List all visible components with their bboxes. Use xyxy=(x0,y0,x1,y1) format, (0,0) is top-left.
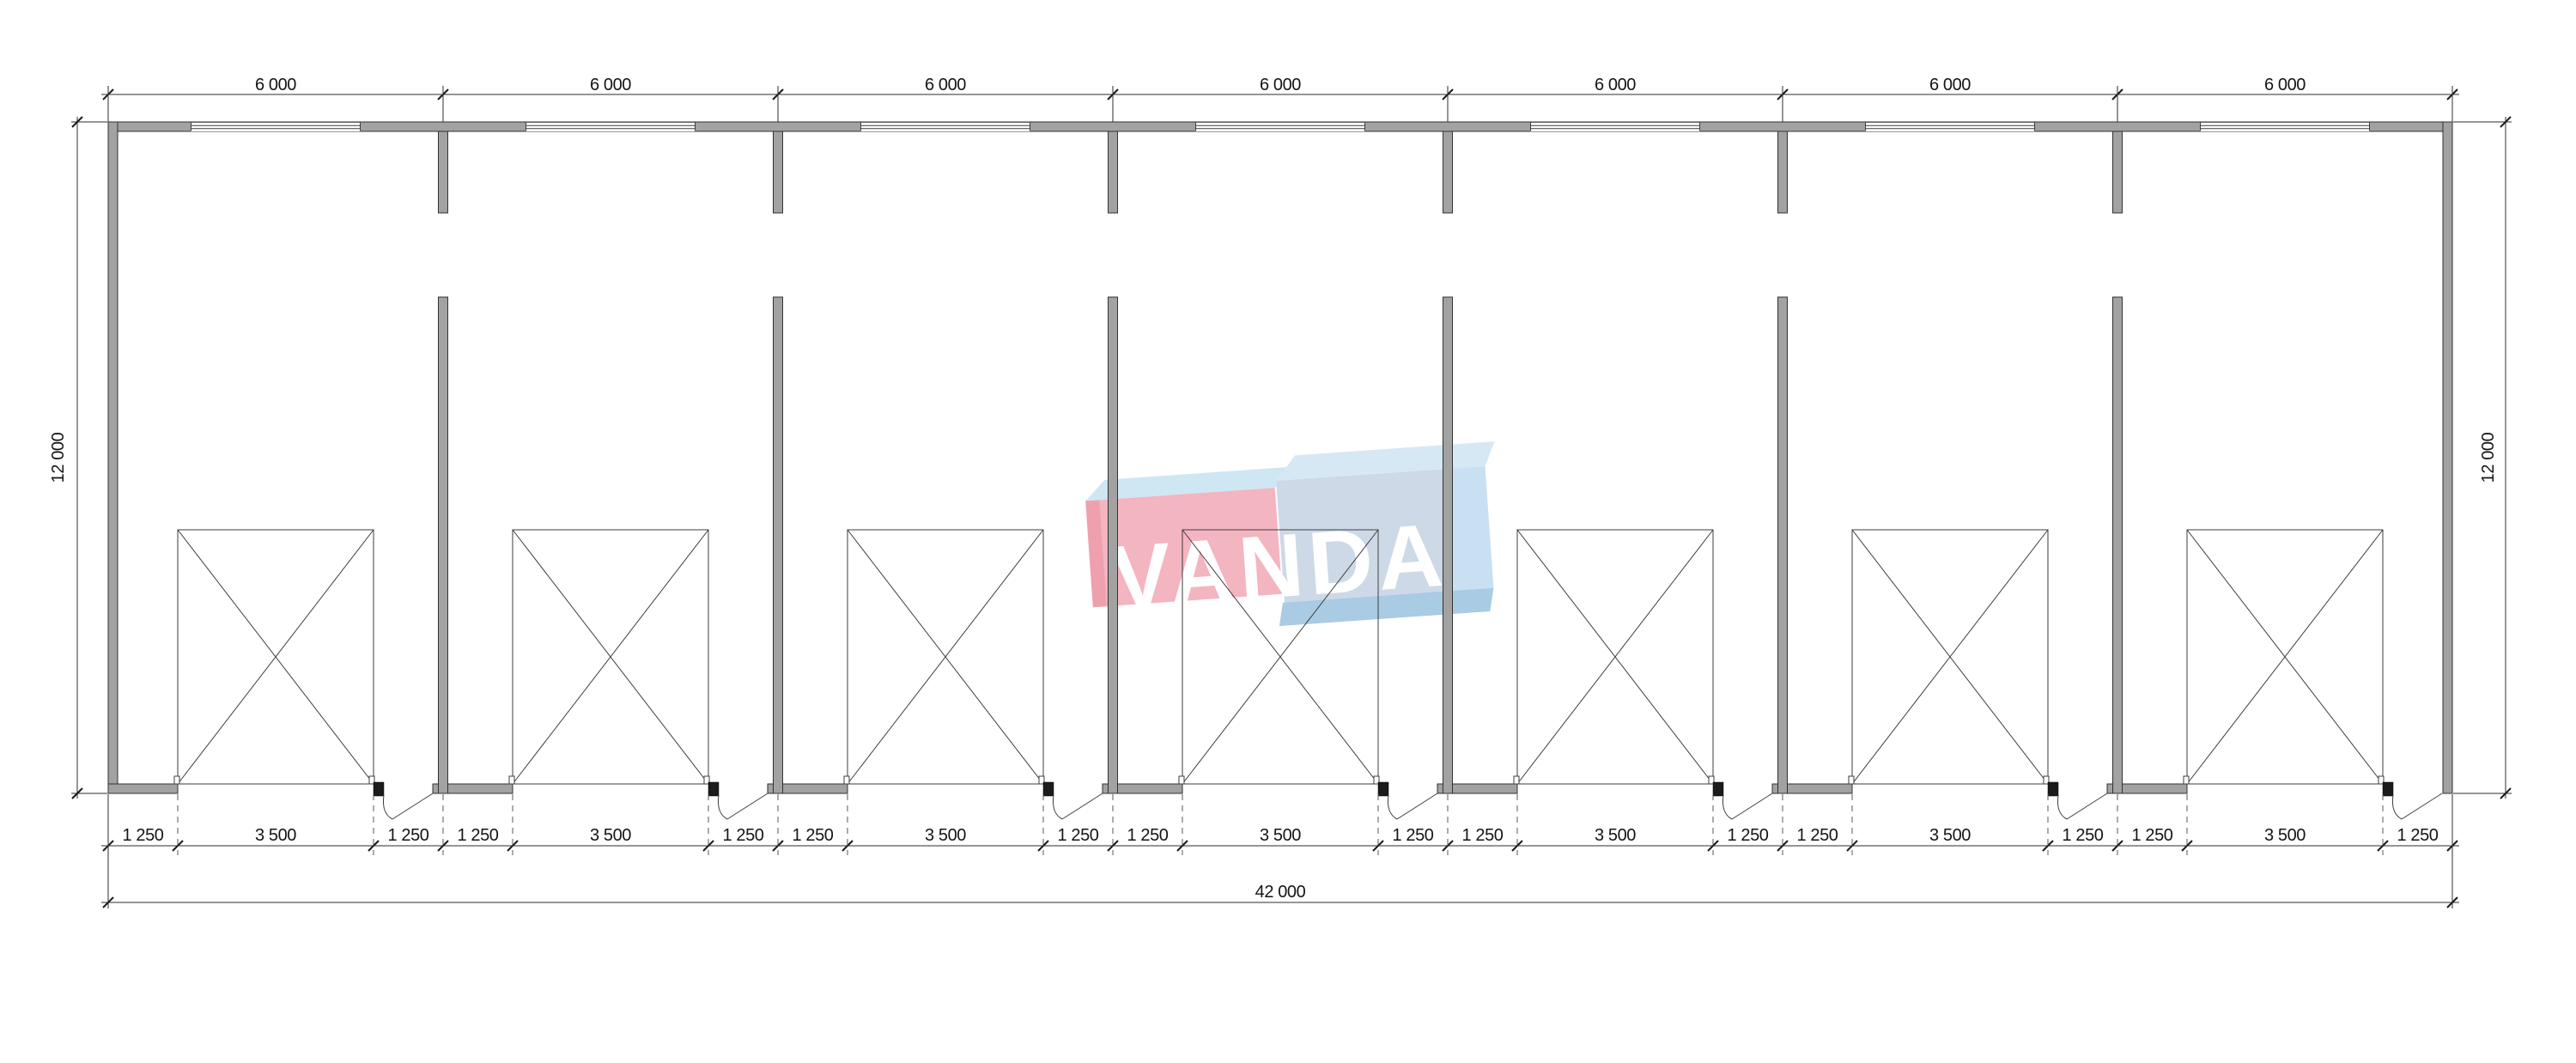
window-opening xyxy=(526,123,696,131)
dimension-label: 6 000 xyxy=(925,76,966,94)
dimension-label: 6 000 xyxy=(590,76,631,94)
garage-jamb-marker xyxy=(174,776,179,784)
partition-wall xyxy=(774,297,783,793)
dimension-label: 1 250 xyxy=(2131,826,2172,845)
partition-wall xyxy=(1443,297,1453,793)
partition-wall xyxy=(2113,297,2123,793)
dimension-label: 3 500 xyxy=(1260,826,1301,845)
dimension-label: 1 250 xyxy=(2062,826,2103,845)
garage-jamb-marker xyxy=(2184,776,2189,784)
dimension-label: 6 000 xyxy=(1260,76,1301,94)
dimension-label: 6 000 xyxy=(1595,76,1636,94)
window-opening xyxy=(191,123,361,131)
dimension-label: 1 250 xyxy=(1796,826,1838,845)
door-leaf xyxy=(727,793,768,819)
door-jamb xyxy=(1713,782,1723,796)
window-opening xyxy=(1195,123,1365,131)
door-swing-arc xyxy=(1722,795,1732,819)
door-jamb xyxy=(2048,782,2058,796)
door-jamb xyxy=(1043,782,1054,796)
left-height-dimension-label: 12 000 xyxy=(49,432,68,483)
door-jamb xyxy=(374,782,384,796)
door-jamb xyxy=(1378,782,1388,796)
dimension-label: 6 000 xyxy=(2264,76,2306,94)
right-height-dimension-label: 12 000 xyxy=(2479,432,2498,483)
door-swing-arc xyxy=(2057,795,2067,819)
dimension-label: 1 250 xyxy=(1392,826,1433,845)
partition-wall xyxy=(1109,297,1118,793)
dimension-label: 1 250 xyxy=(792,826,833,845)
partition-wall-stub xyxy=(1109,131,1118,213)
window-opening xyxy=(1865,123,2035,131)
dimension-label: 1 250 xyxy=(1727,826,1768,845)
partition-wall xyxy=(1778,297,1788,793)
door-leaf xyxy=(2067,793,2107,819)
door-swing-arc xyxy=(1388,795,1397,819)
floor-plan-canvas: VANDA 6 0001 2503 5001 2506 0001 2503 50… xyxy=(0,0,2576,1063)
door-leaf xyxy=(1732,793,1772,819)
door-swing-arc xyxy=(2392,795,2402,819)
garage-jamb-marker xyxy=(1514,776,1519,784)
garage-jamb-marker xyxy=(1849,776,1854,784)
dimension-label: 3 500 xyxy=(1929,826,1971,845)
dimension-label: 1 250 xyxy=(457,826,498,845)
door-swing-arc xyxy=(718,795,727,819)
door-leaf xyxy=(1397,793,1437,819)
right-exterior-wall xyxy=(2443,122,2452,793)
dimension-label: 1 250 xyxy=(1461,826,1503,845)
garage-jamb-marker xyxy=(509,776,514,784)
dimension-label: 3 500 xyxy=(590,826,631,845)
window-opening xyxy=(1530,123,1700,131)
partition-wall xyxy=(439,297,448,793)
dimension-label: 3 500 xyxy=(925,826,966,845)
window-opening xyxy=(2200,123,2370,131)
partition-wall-stub xyxy=(2113,131,2123,213)
total-width-dimension-label: 42 000 xyxy=(1255,883,1306,902)
dimension-label: 6 000 xyxy=(1929,76,1971,94)
door-leaf xyxy=(2402,793,2442,819)
door-jamb xyxy=(2383,782,2393,796)
partition-wall-stub xyxy=(1778,131,1788,213)
door-swing-arc xyxy=(383,795,392,819)
dimension-label: 1 250 xyxy=(2397,826,2438,845)
dimension-label: 1 250 xyxy=(722,826,763,845)
door-leaf xyxy=(392,793,433,819)
partition-wall-stub xyxy=(774,131,783,213)
floor-plan: VANDA 6 0001 2503 5001 2506 0001 2503 50… xyxy=(0,0,2576,1063)
dimension-label: 3 500 xyxy=(1595,826,1636,845)
door-jamb xyxy=(708,782,719,796)
dimension-label: 3 500 xyxy=(255,826,296,845)
window-opening xyxy=(860,123,1030,131)
dimension-label: 3 500 xyxy=(2264,826,2306,845)
left-exterior-wall xyxy=(108,122,118,793)
dimension-label: 1 250 xyxy=(122,826,163,845)
dimension-label: 6 000 xyxy=(255,76,296,94)
door-leaf xyxy=(1062,793,1103,819)
dimension-label: 1 250 xyxy=(1057,826,1098,845)
garage-jamb-marker xyxy=(1179,776,1184,784)
partition-wall-stub xyxy=(439,131,448,213)
garage-jamb-marker xyxy=(844,776,849,784)
dimension-label: 1 250 xyxy=(1127,826,1168,845)
dimension-label: 1 250 xyxy=(387,826,428,845)
partition-wall-stub xyxy=(1443,131,1453,213)
bottom-wall-segment xyxy=(108,784,178,793)
door-swing-arc xyxy=(1053,795,1062,819)
